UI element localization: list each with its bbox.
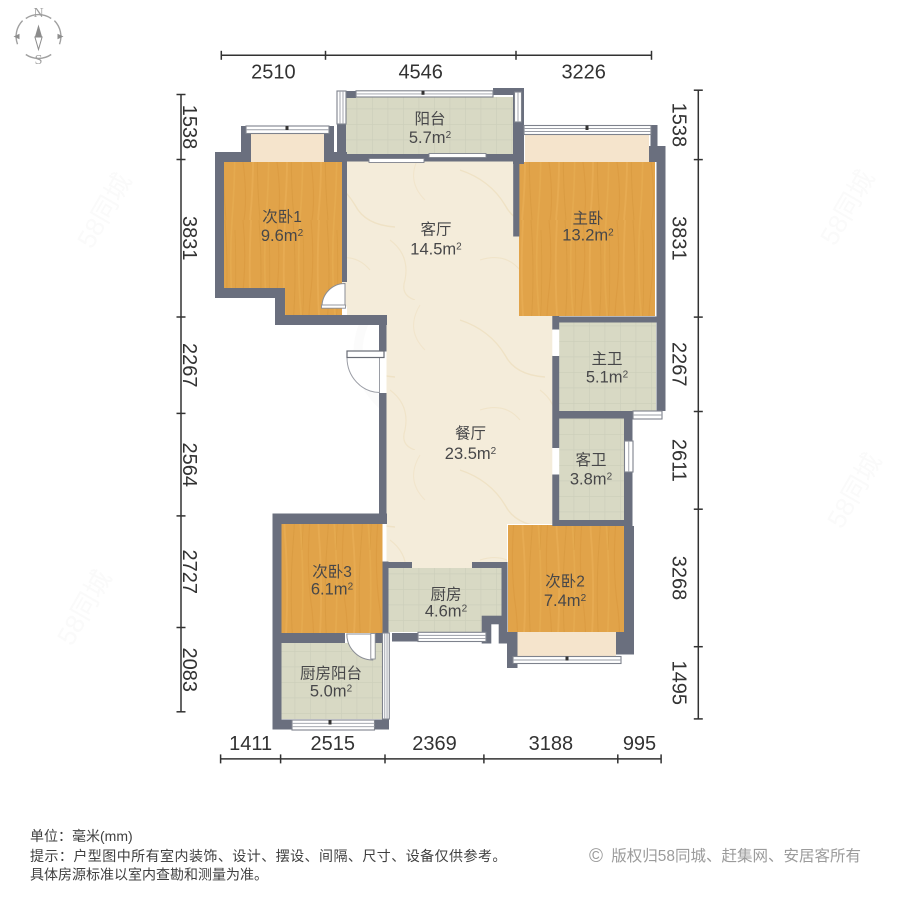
svg-text:主卫: 主卫 bbox=[591, 350, 622, 368]
svg-text:次卧2: 次卧2 bbox=[545, 573, 585, 591]
svg-text:14.5m2: 14.5m2 bbox=[410, 241, 462, 259]
svg-text:23.5m2: 23.5m2 bbox=[445, 445, 497, 463]
svg-text:1495: 1495 bbox=[667, 661, 689, 706]
svg-text:2727: 2727 bbox=[178, 549, 200, 594]
svg-text:次卧3: 次卧3 bbox=[312, 563, 352, 581]
svg-text:S: S bbox=[35, 53, 43, 68]
svg-text:© 版权归58同城、赶集网、安居客所有: © 版权归58同城、赶集网、安居客所有 bbox=[589, 846, 861, 867]
svg-text:6.1m2: 6.1m2 bbox=[311, 581, 354, 599]
svg-text:次卧1: 次卧1 bbox=[262, 208, 302, 226]
svg-text:厨房阳台: 厨房阳台 bbox=[300, 665, 362, 683]
svg-text:餐厅: 餐厅 bbox=[455, 425, 486, 443]
svg-text:单位：毫米(mm): 单位：毫米(mm) bbox=[30, 828, 133, 844]
svg-text:995: 995 bbox=[623, 733, 656, 755]
svg-text:2510: 2510 bbox=[251, 62, 296, 84]
svg-text:9.6m2: 9.6m2 bbox=[261, 227, 304, 245]
svg-text:5.1m2: 5.1m2 bbox=[586, 369, 629, 387]
svg-text:3831: 3831 bbox=[667, 216, 689, 261]
svg-text:3226: 3226 bbox=[561, 62, 606, 84]
svg-text:2083: 2083 bbox=[178, 647, 200, 692]
svg-text:2611: 2611 bbox=[667, 439, 689, 482]
svg-text:阳台: 阳台 bbox=[414, 110, 445, 128]
svg-text:2369: 2369 bbox=[412, 733, 457, 755]
svg-text:客厅: 客厅 bbox=[420, 221, 451, 239]
svg-text:2267: 2267 bbox=[667, 342, 689, 387]
svg-text:厨房: 厨房 bbox=[430, 586, 461, 604]
svg-text:客卫: 客卫 bbox=[575, 451, 606, 469]
svg-text:5.7m2: 5.7m2 bbox=[409, 129, 452, 147]
svg-text:13.2m2: 13.2m2 bbox=[562, 227, 614, 245]
svg-text:提示：户型图中所有室内装饰、设计、摆设、间隔、尺寸、设备仅供: 提示：户型图中所有室内装饰、设计、摆设、间隔、尺寸、设备仅供参考。 bbox=[30, 848, 507, 864]
svg-text:2515: 2515 bbox=[311, 733, 356, 755]
svg-text:2564: 2564 bbox=[178, 442, 200, 487]
svg-text:5.0m2: 5.0m2 bbox=[310, 683, 353, 701]
svg-text:7.4m2: 7.4m2 bbox=[544, 592, 587, 610]
svg-text:主卧: 主卧 bbox=[572, 210, 603, 228]
svg-text:2267: 2267 bbox=[178, 343, 200, 388]
svg-text:N: N bbox=[33, 6, 43, 21]
svg-text:1538: 1538 bbox=[667, 103, 689, 147]
svg-text:1411: 1411 bbox=[229, 733, 272, 755]
svg-text:4.6m2: 4.6m2 bbox=[425, 603, 468, 621]
svg-text:3188: 3188 bbox=[529, 733, 574, 755]
svg-text:3.8m2: 3.8m2 bbox=[570, 471, 613, 489]
svg-text:具体房源标准以室内查勘和测量为准。: 具体房源标准以室内查勘和测量为准。 bbox=[30, 867, 268, 883]
svg-text:4546: 4546 bbox=[398, 62, 443, 84]
svg-text:3268: 3268 bbox=[667, 556, 689, 601]
svg-text:3831: 3831 bbox=[178, 216, 200, 260]
svg-text:1538: 1538 bbox=[178, 105, 200, 150]
